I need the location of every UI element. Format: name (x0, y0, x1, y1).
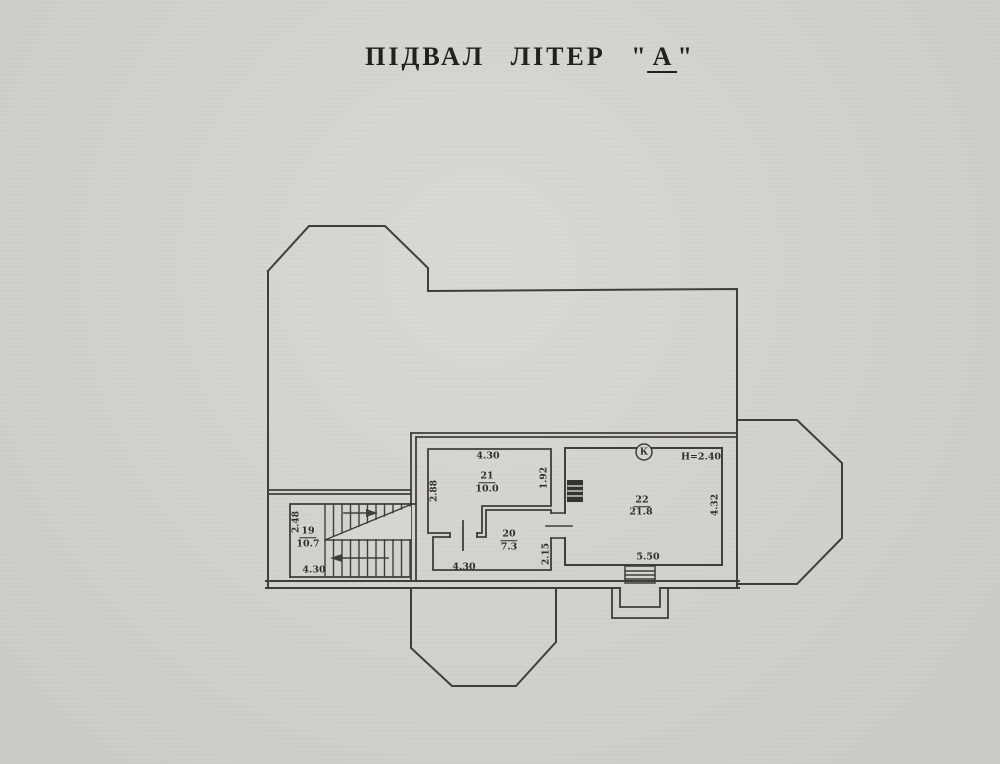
dim-room21-depth-left: 2.88 (431, 480, 440, 502)
room-20-area: 7.3 (501, 542, 518, 552)
room-20-number: 20 (500, 529, 517, 541)
room-19-number: 19 (299, 526, 316, 538)
floor-plan-drawing (0, 0, 1000, 764)
right-bay-outline (737, 420, 842, 584)
room-20-walls (433, 510, 551, 570)
room-19-area: 10.7 (296, 539, 319, 549)
room-22-area: 21.8 (629, 507, 652, 517)
entrance-pit (612, 588, 668, 618)
doorway-20-22 (546, 513, 572, 538)
dim-room22-width: 5.50 (636, 552, 659, 562)
dim-room21-width: 4.30 (476, 451, 499, 461)
dim-room21-depth-right: 1.92 (541, 467, 550, 489)
duct-symbol-letter: К (640, 448, 648, 457)
room-22-number: 22 (633, 495, 650, 507)
dim-room19-width: 4.30 (302, 565, 325, 575)
room-21-number: 21 (478, 471, 495, 483)
down-arrow-icon (330, 554, 342, 562)
room-21-area: 10.0 (475, 484, 498, 494)
dim-room20-depth: 2.15 (543, 543, 552, 565)
bottom-bay-outline (411, 588, 556, 686)
dim-room19-depth: 2.48 (293, 511, 302, 533)
dim-room22-depth: 4.32 (712, 494, 721, 516)
duct-shaft-hatch (567, 480, 583, 502)
scanned-floor-plan-page: ПІДВАЛ ЛІТЕР "А" (0, 0, 1000, 764)
dim-room20-width: 4.30 (452, 562, 475, 572)
ceiling-height-note: Н=2.40 (681, 452, 721, 462)
